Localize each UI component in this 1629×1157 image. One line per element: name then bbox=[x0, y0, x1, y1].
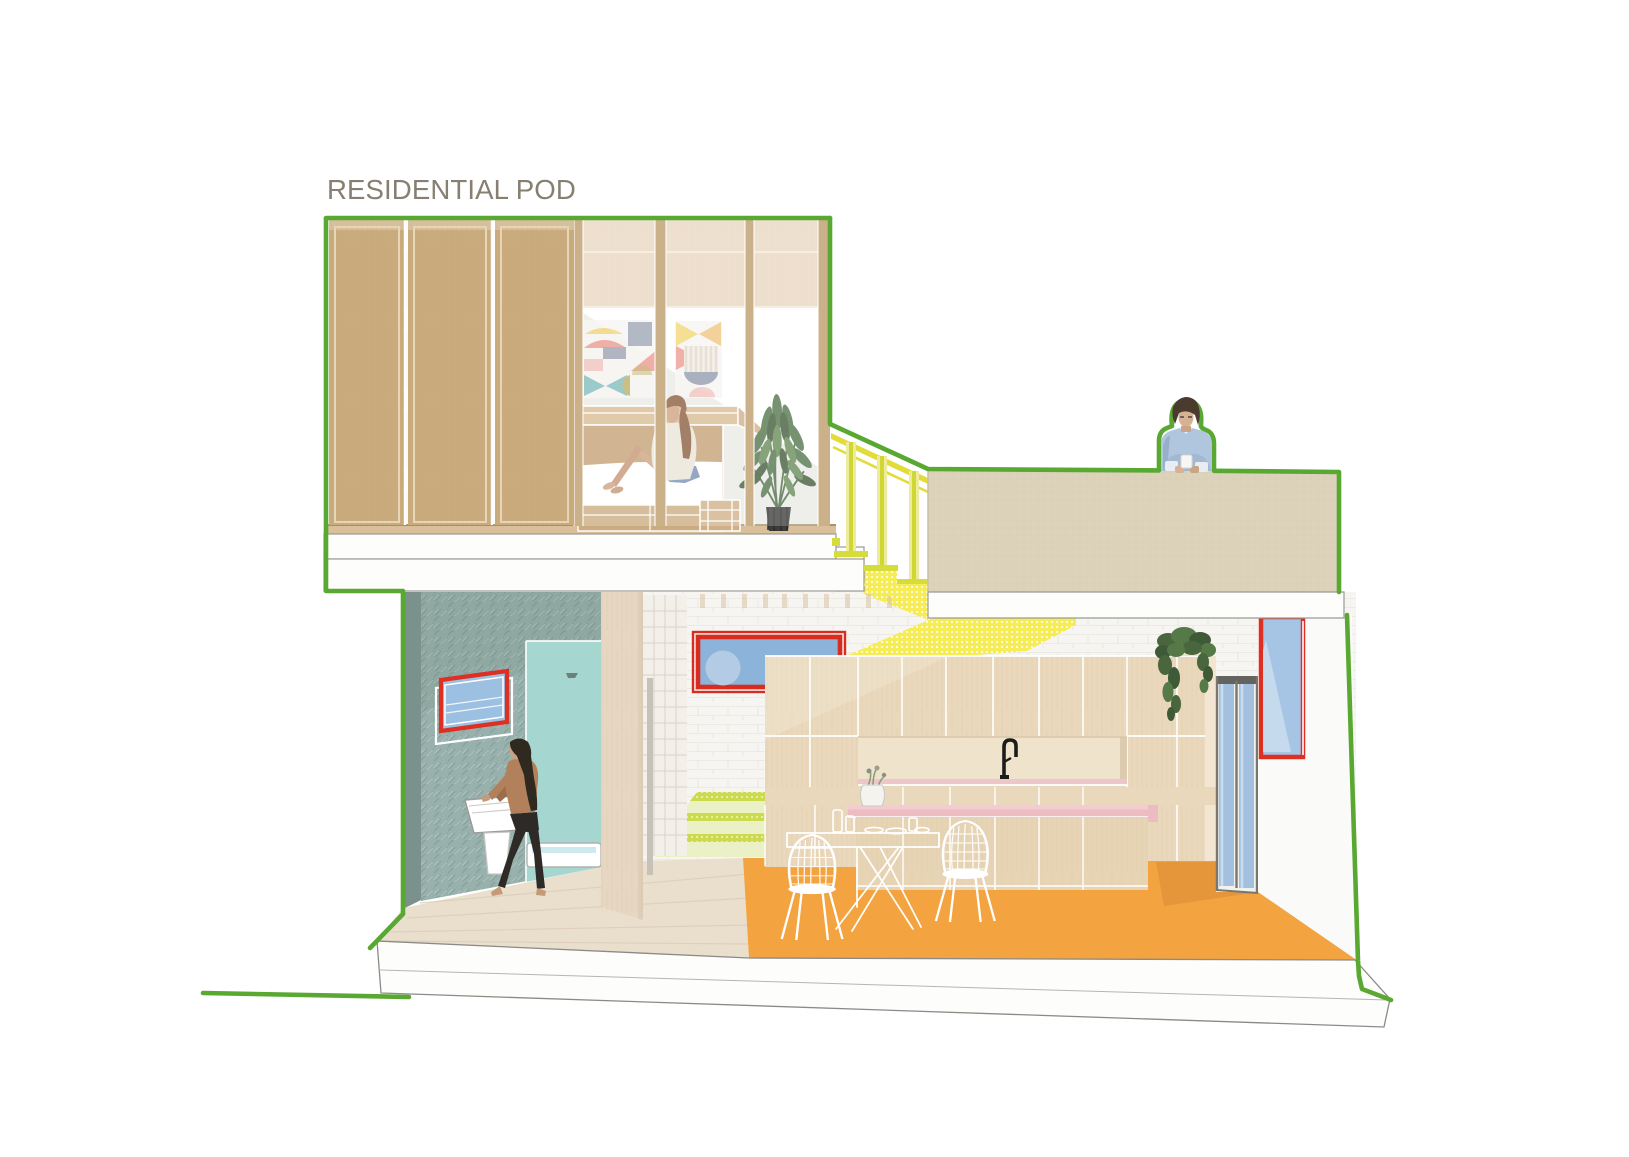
svg-text:RESIDENTIAL POD: RESIDENTIAL POD bbox=[327, 174, 576, 205]
